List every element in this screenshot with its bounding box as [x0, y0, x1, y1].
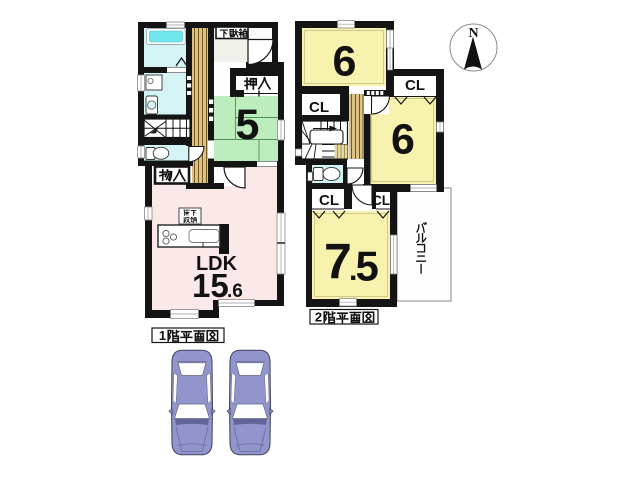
svg-text:CL: CL	[405, 77, 425, 94]
svg-text:7: 7	[324, 234, 352, 290]
svg-text:6: 6	[333, 38, 357, 86]
svg-text:CL: CL	[309, 99, 329, 116]
svg-text:.6: .6	[227, 281, 243, 302]
svg-text:5: 5	[236, 101, 260, 149]
svg-text:1: 1	[159, 328, 166, 343]
svg-text:CL: CL	[319, 192, 339, 209]
svg-text:CL: CL	[372, 193, 390, 208]
svg-text:5: 5	[356, 243, 379, 290]
svg-text:6: 6	[391, 116, 415, 164]
svg-text:2: 2	[315, 309, 322, 324]
svg-text:15: 15	[192, 267, 229, 304]
